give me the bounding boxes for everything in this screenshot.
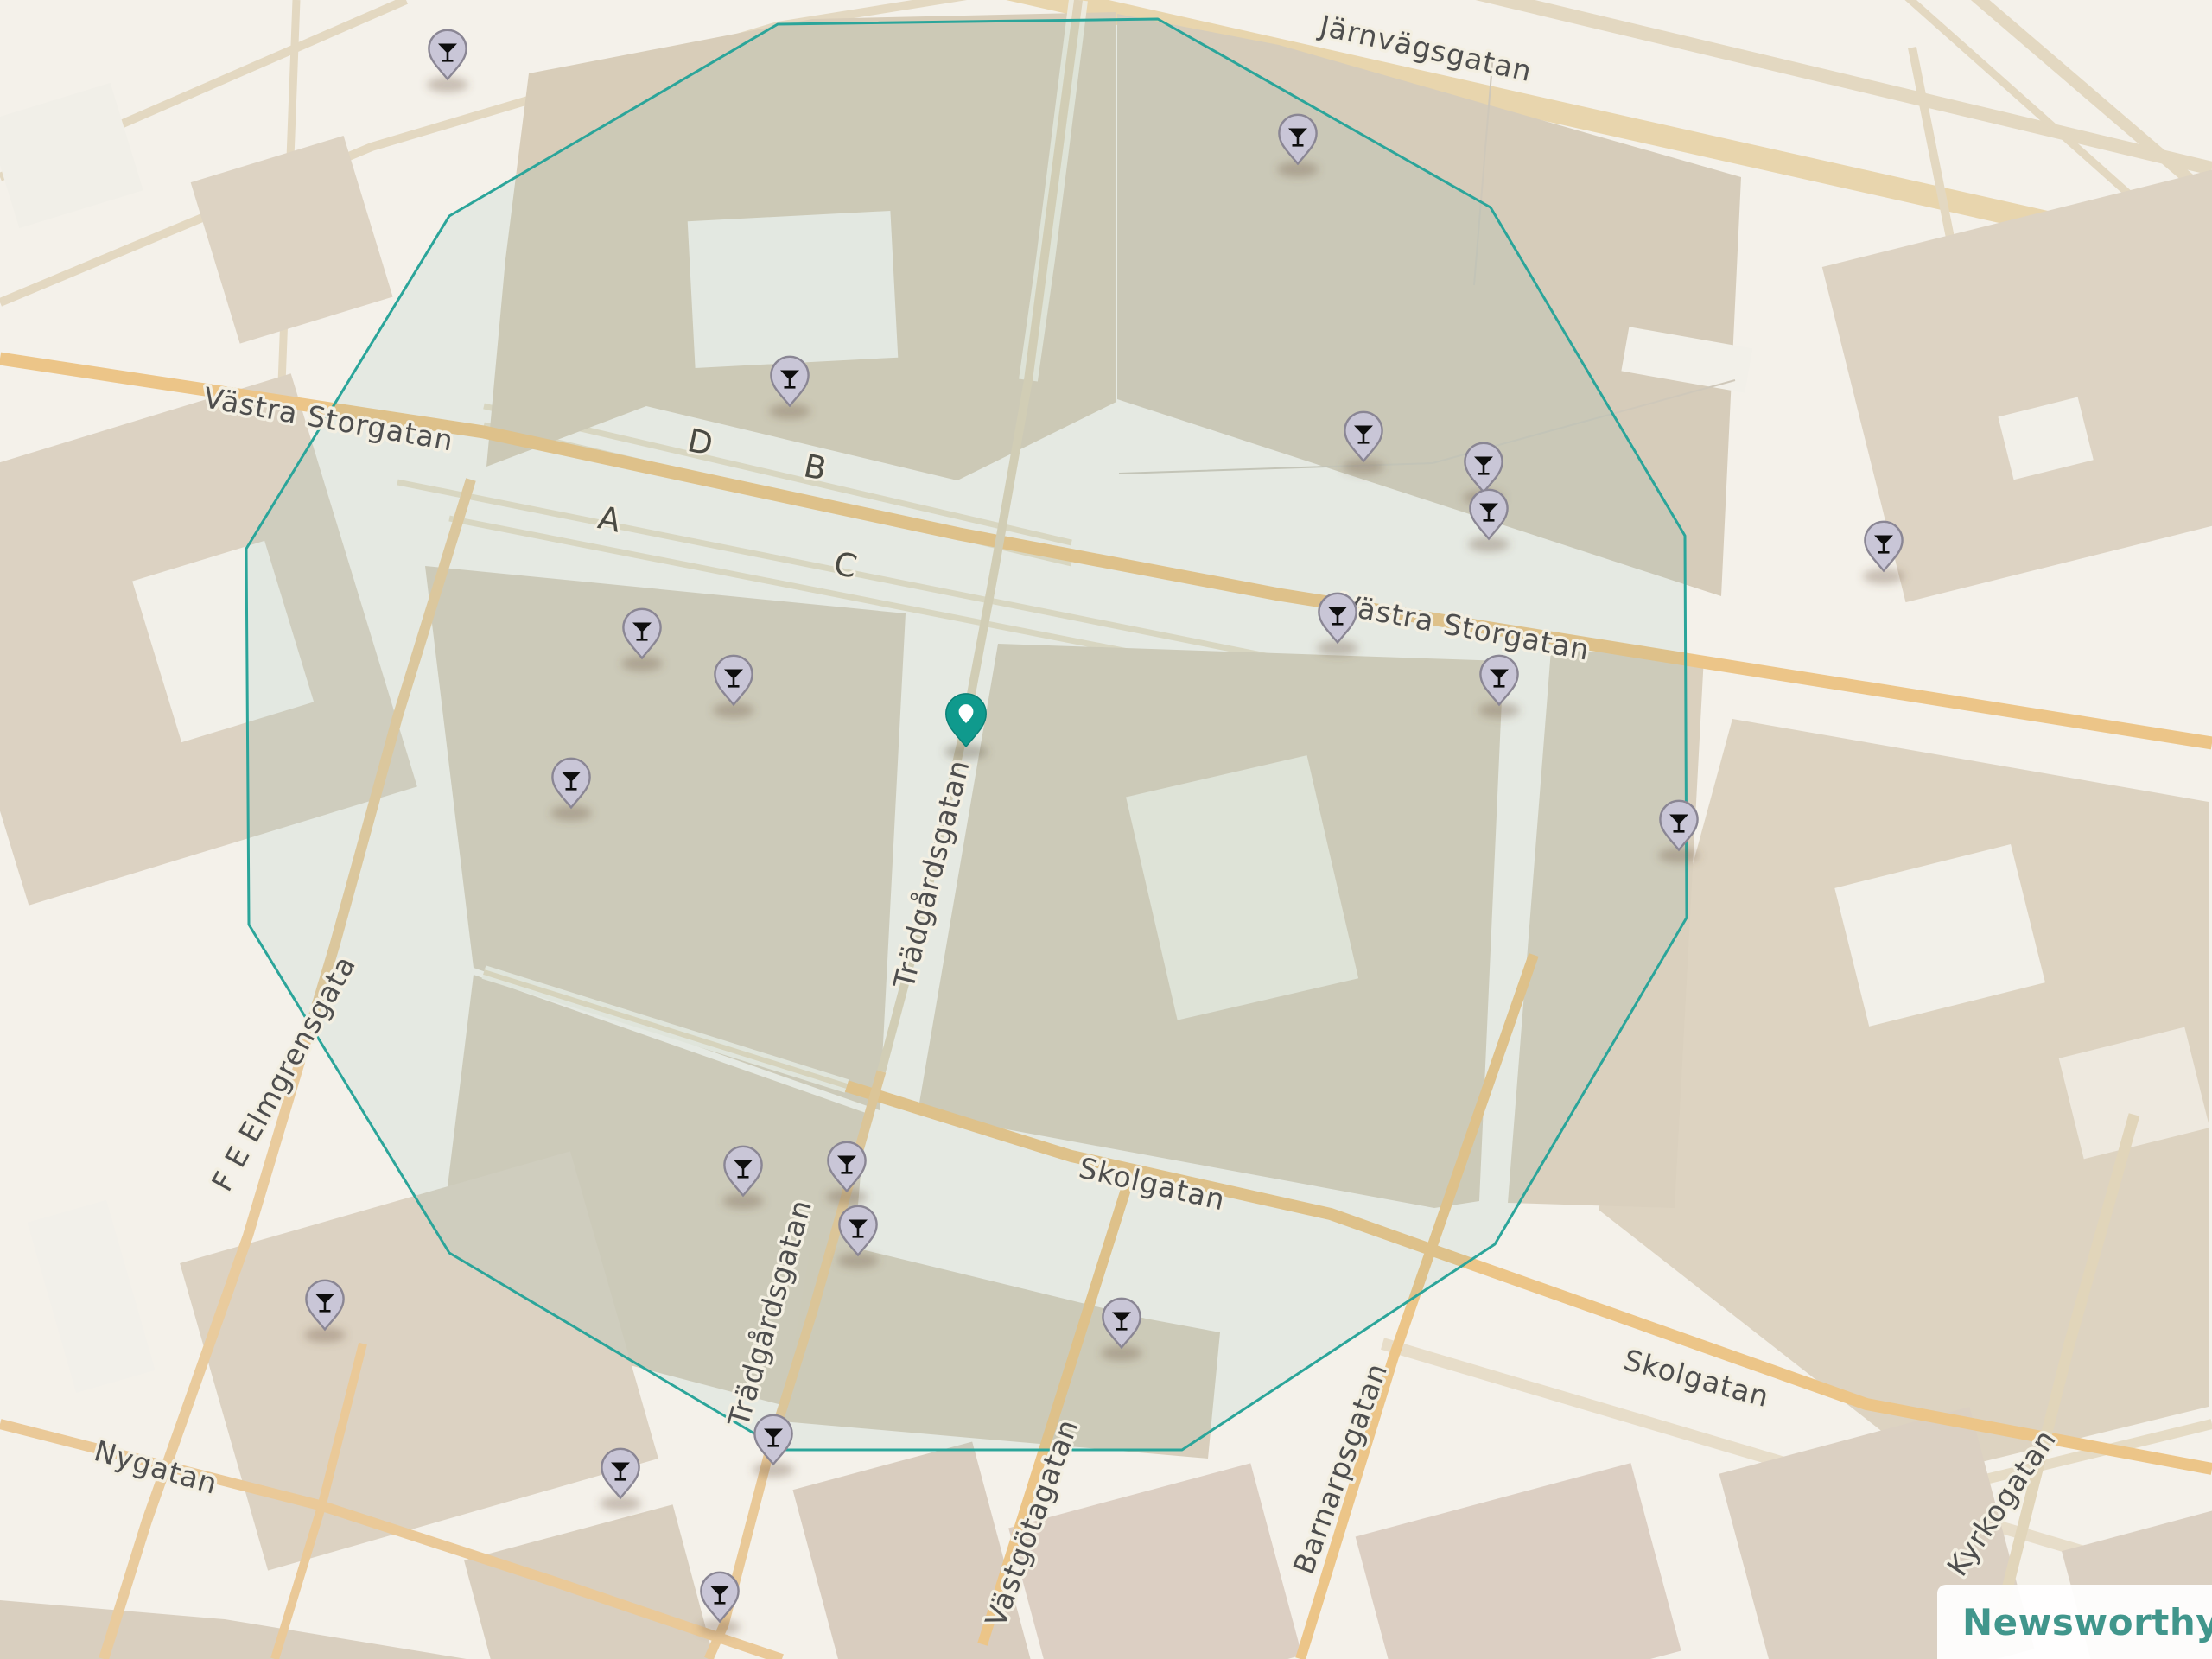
map-page: { "brand": { "name": "Newsworthy", "logo…	[0, 0, 2212, 1659]
venue-pin-martini[interactable]	[621, 609, 663, 671]
venue-pin-martini[interactable]	[753, 1415, 794, 1478]
attribution-badge[interactable]: Newsworthy	[1937, 1585, 2212, 1659]
venue-pin-martini[interactable]	[600, 1449, 641, 1511]
venue-pin-martini[interactable]	[1101, 1299, 1142, 1361]
brand-name: Newsworthy	[1962, 1601, 2212, 1643]
venue-pin-martini[interactable]	[722, 1147, 764, 1209]
venue-pin-martini[interactable]	[1343, 412, 1384, 474]
venue-pin-martini[interactable]	[1277, 115, 1319, 177]
venue-pin-martini[interactable]	[1478, 656, 1520, 718]
map-canvas[interactable]: JärnvägsgatanJärnvägsgatanVästra Storgat…	[0, 0, 2212, 1659]
venue-pin-martini[interactable]	[427, 30, 468, 92]
venue-pin-martini[interactable]	[713, 656, 754, 718]
selected-location-pin[interactable]	[944, 694, 988, 760]
venue-pin-martini[interactable]	[837, 1206, 879, 1268]
venue-pin-martini[interactable]	[699, 1573, 741, 1635]
venue-pin-martini[interactable]	[304, 1281, 346, 1343]
venue-pin-martini[interactable]	[1317, 594, 1358, 656]
venue-pin-martini[interactable]	[550, 759, 592, 821]
venue-pin-martini[interactable]	[1468, 490, 1510, 552]
venue-pin-martini[interactable]	[1658, 801, 1700, 863]
venue-pin-martini[interactable]	[826, 1142, 868, 1205]
venue-pin-martini[interactable]	[1863, 522, 1904, 584]
venue-pin-martini[interactable]	[769, 357, 810, 419]
